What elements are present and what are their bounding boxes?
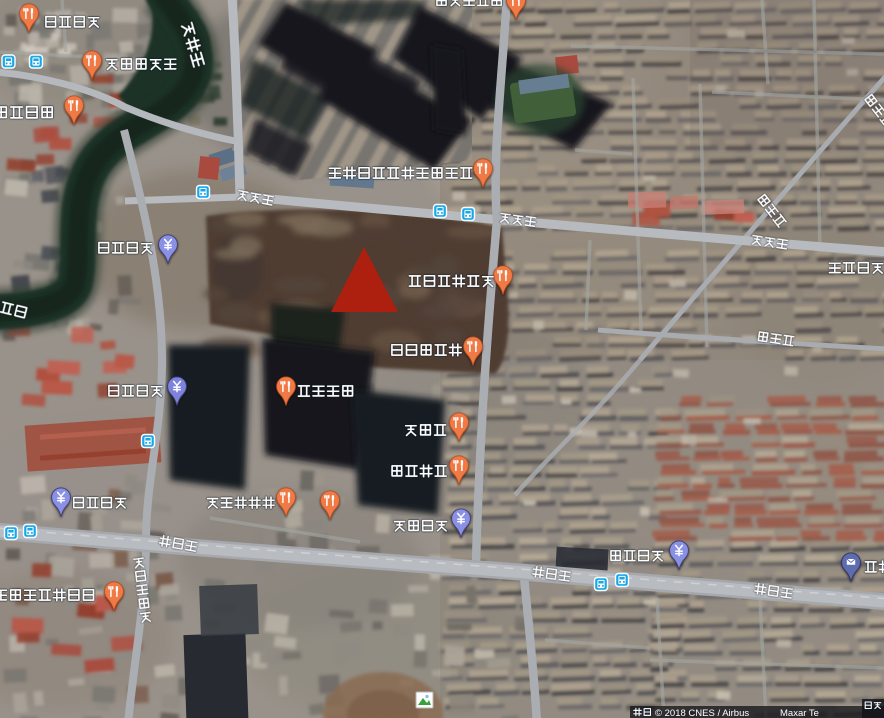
svg-text:Maxar Te: Maxar Te: [780, 708, 819, 718]
svg-text:© 2018 CNES / Airbus: © 2018 CNES / Airbus: [655, 708, 749, 718]
